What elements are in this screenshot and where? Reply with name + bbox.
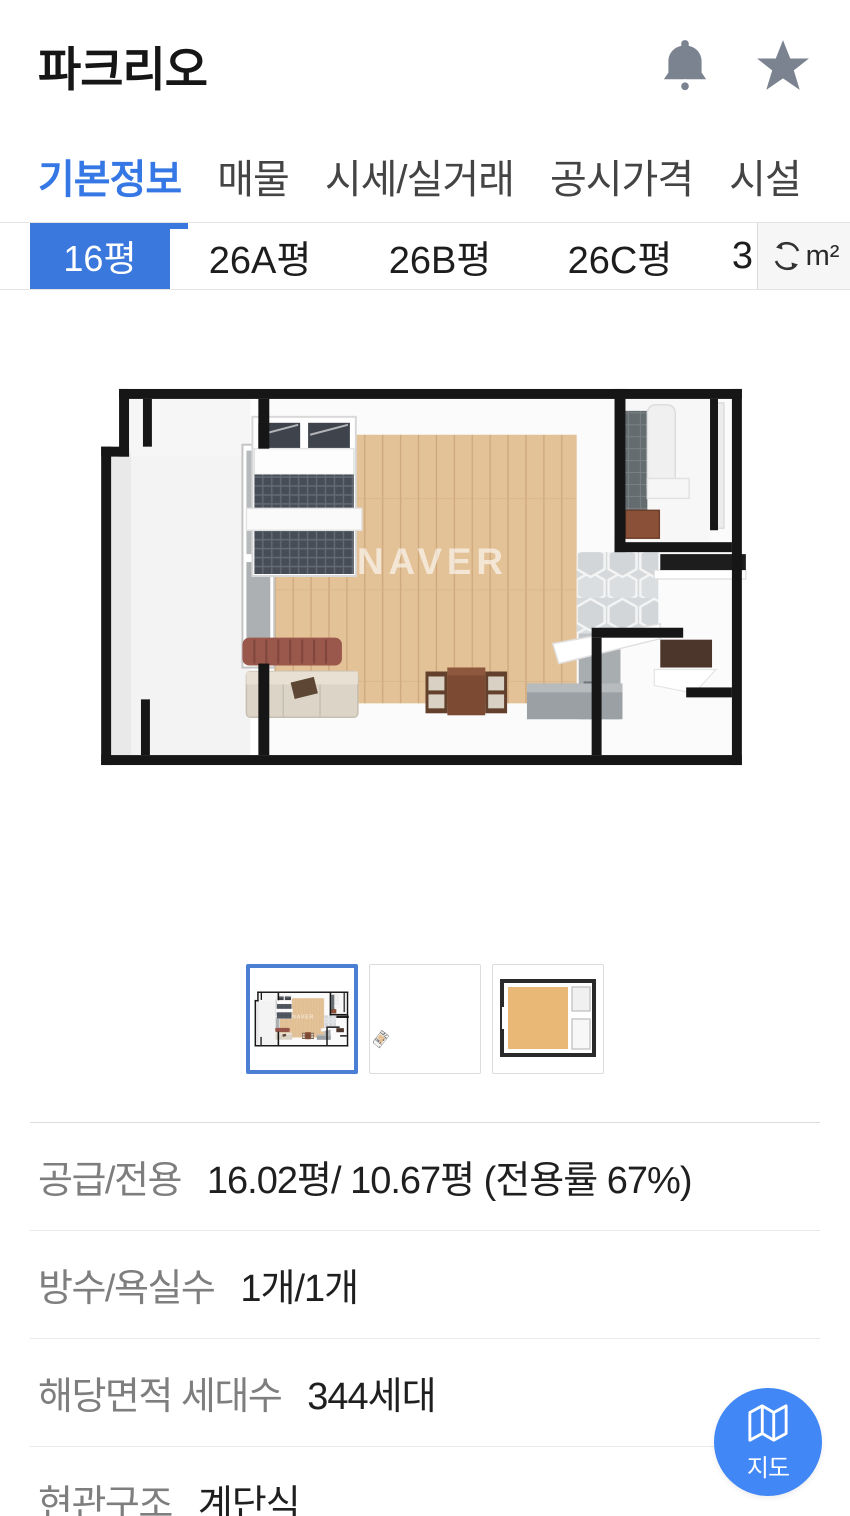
bell-icon[interactable] bbox=[658, 37, 712, 93]
property-detail-table: 공급/전용 16.02평/ 10.67평 (전용률 67%) 방수/욕실수 1개… bbox=[30, 1122, 820, 1516]
convert-arrows-icon bbox=[769, 238, 805, 274]
unit-label: m² bbox=[806, 240, 840, 273]
detail-label: 현관구조 bbox=[38, 1473, 172, 1516]
detail-value: 344세대 bbox=[307, 1365, 435, 1420]
area-tab-26c[interactable]: 26C평 bbox=[530, 223, 710, 289]
area-tab-26b[interactable]: 26B평 bbox=[350, 223, 530, 289]
floorplan-thumbnails bbox=[0, 964, 850, 1076]
detail-label: 방수/욕실수 bbox=[38, 1257, 214, 1312]
detail-row-supply-exclusive-area: 공급/전용 16.02평/ 10.67평 (전용률 67%) bbox=[30, 1123, 820, 1231]
tab-listings[interactable]: 매물 bbox=[217, 147, 289, 205]
area-tab-bar: 16평 26A평 26B평 26C평 3 m² bbox=[0, 222, 850, 290]
map-button[interactable]: 지도 bbox=[714, 1388, 822, 1496]
detail-value: 16.02평/ 10.67평 (전용률 67%) bbox=[207, 1149, 692, 1204]
detail-value: 계단식 bbox=[198, 1473, 300, 1516]
detail-value: 1개/1개 bbox=[240, 1257, 358, 1312]
floorplan-section bbox=[0, 290, 850, 868]
detail-row-rooms-baths: 방수/욕실수 1개/1개 bbox=[30, 1231, 820, 1339]
detail-row-household-count: 해당면적 세대수 344세대 bbox=[30, 1339, 820, 1447]
property-detail-page: 파크리오 기본정보 매물 시세/실거래 공시가격 시설 16평 26A평 bbox=[0, 0, 850, 1516]
main-tab-bar: 기본정보 매물 시세/실거래 공시가격 시설 bbox=[0, 130, 850, 222]
tab-basic-info[interactable]: 기본정보 bbox=[38, 147, 181, 205]
thumbnail-top-down-3d-view[interactable] bbox=[246, 964, 358, 1074]
area-tab-16[interactable]: 16평 bbox=[30, 223, 170, 289]
header: 파크리오 bbox=[0, 0, 850, 130]
thumbnail-isometric-3d-view[interactable] bbox=[369, 964, 481, 1074]
tab-facilities[interactable]: 시설 bbox=[729, 147, 801, 205]
map-icon bbox=[743, 1402, 793, 1444]
tab-price-transactions[interactable]: 시세/실거래 bbox=[325, 147, 514, 205]
unit-convert-button[interactable]: m² bbox=[757, 223, 850, 289]
area-tab-26a[interactable]: 26A평 bbox=[170, 223, 350, 289]
detail-label: 공급/전용 bbox=[38, 1149, 181, 1204]
tab-official-price[interactable]: 공시가격 bbox=[550, 147, 693, 205]
header-icons bbox=[658, 37, 810, 93]
star-icon[interactable] bbox=[756, 37, 810, 93]
area-tab-33-truncated[interactable]: 3 bbox=[710, 223, 757, 289]
map-button-label: 지도 bbox=[747, 1448, 789, 1483]
detail-label: 해당면적 세대수 bbox=[38, 1365, 281, 1420]
area-tab-padding bbox=[0, 223, 30, 289]
thumbnail-flat-2d-plan[interactable] bbox=[492, 964, 604, 1074]
page-title: 파크리오 bbox=[38, 31, 207, 100]
floorplan-image[interactable] bbox=[97, 383, 754, 771]
detail-row-entrance-type: 현관구조 계단식 bbox=[30, 1447, 820, 1516]
